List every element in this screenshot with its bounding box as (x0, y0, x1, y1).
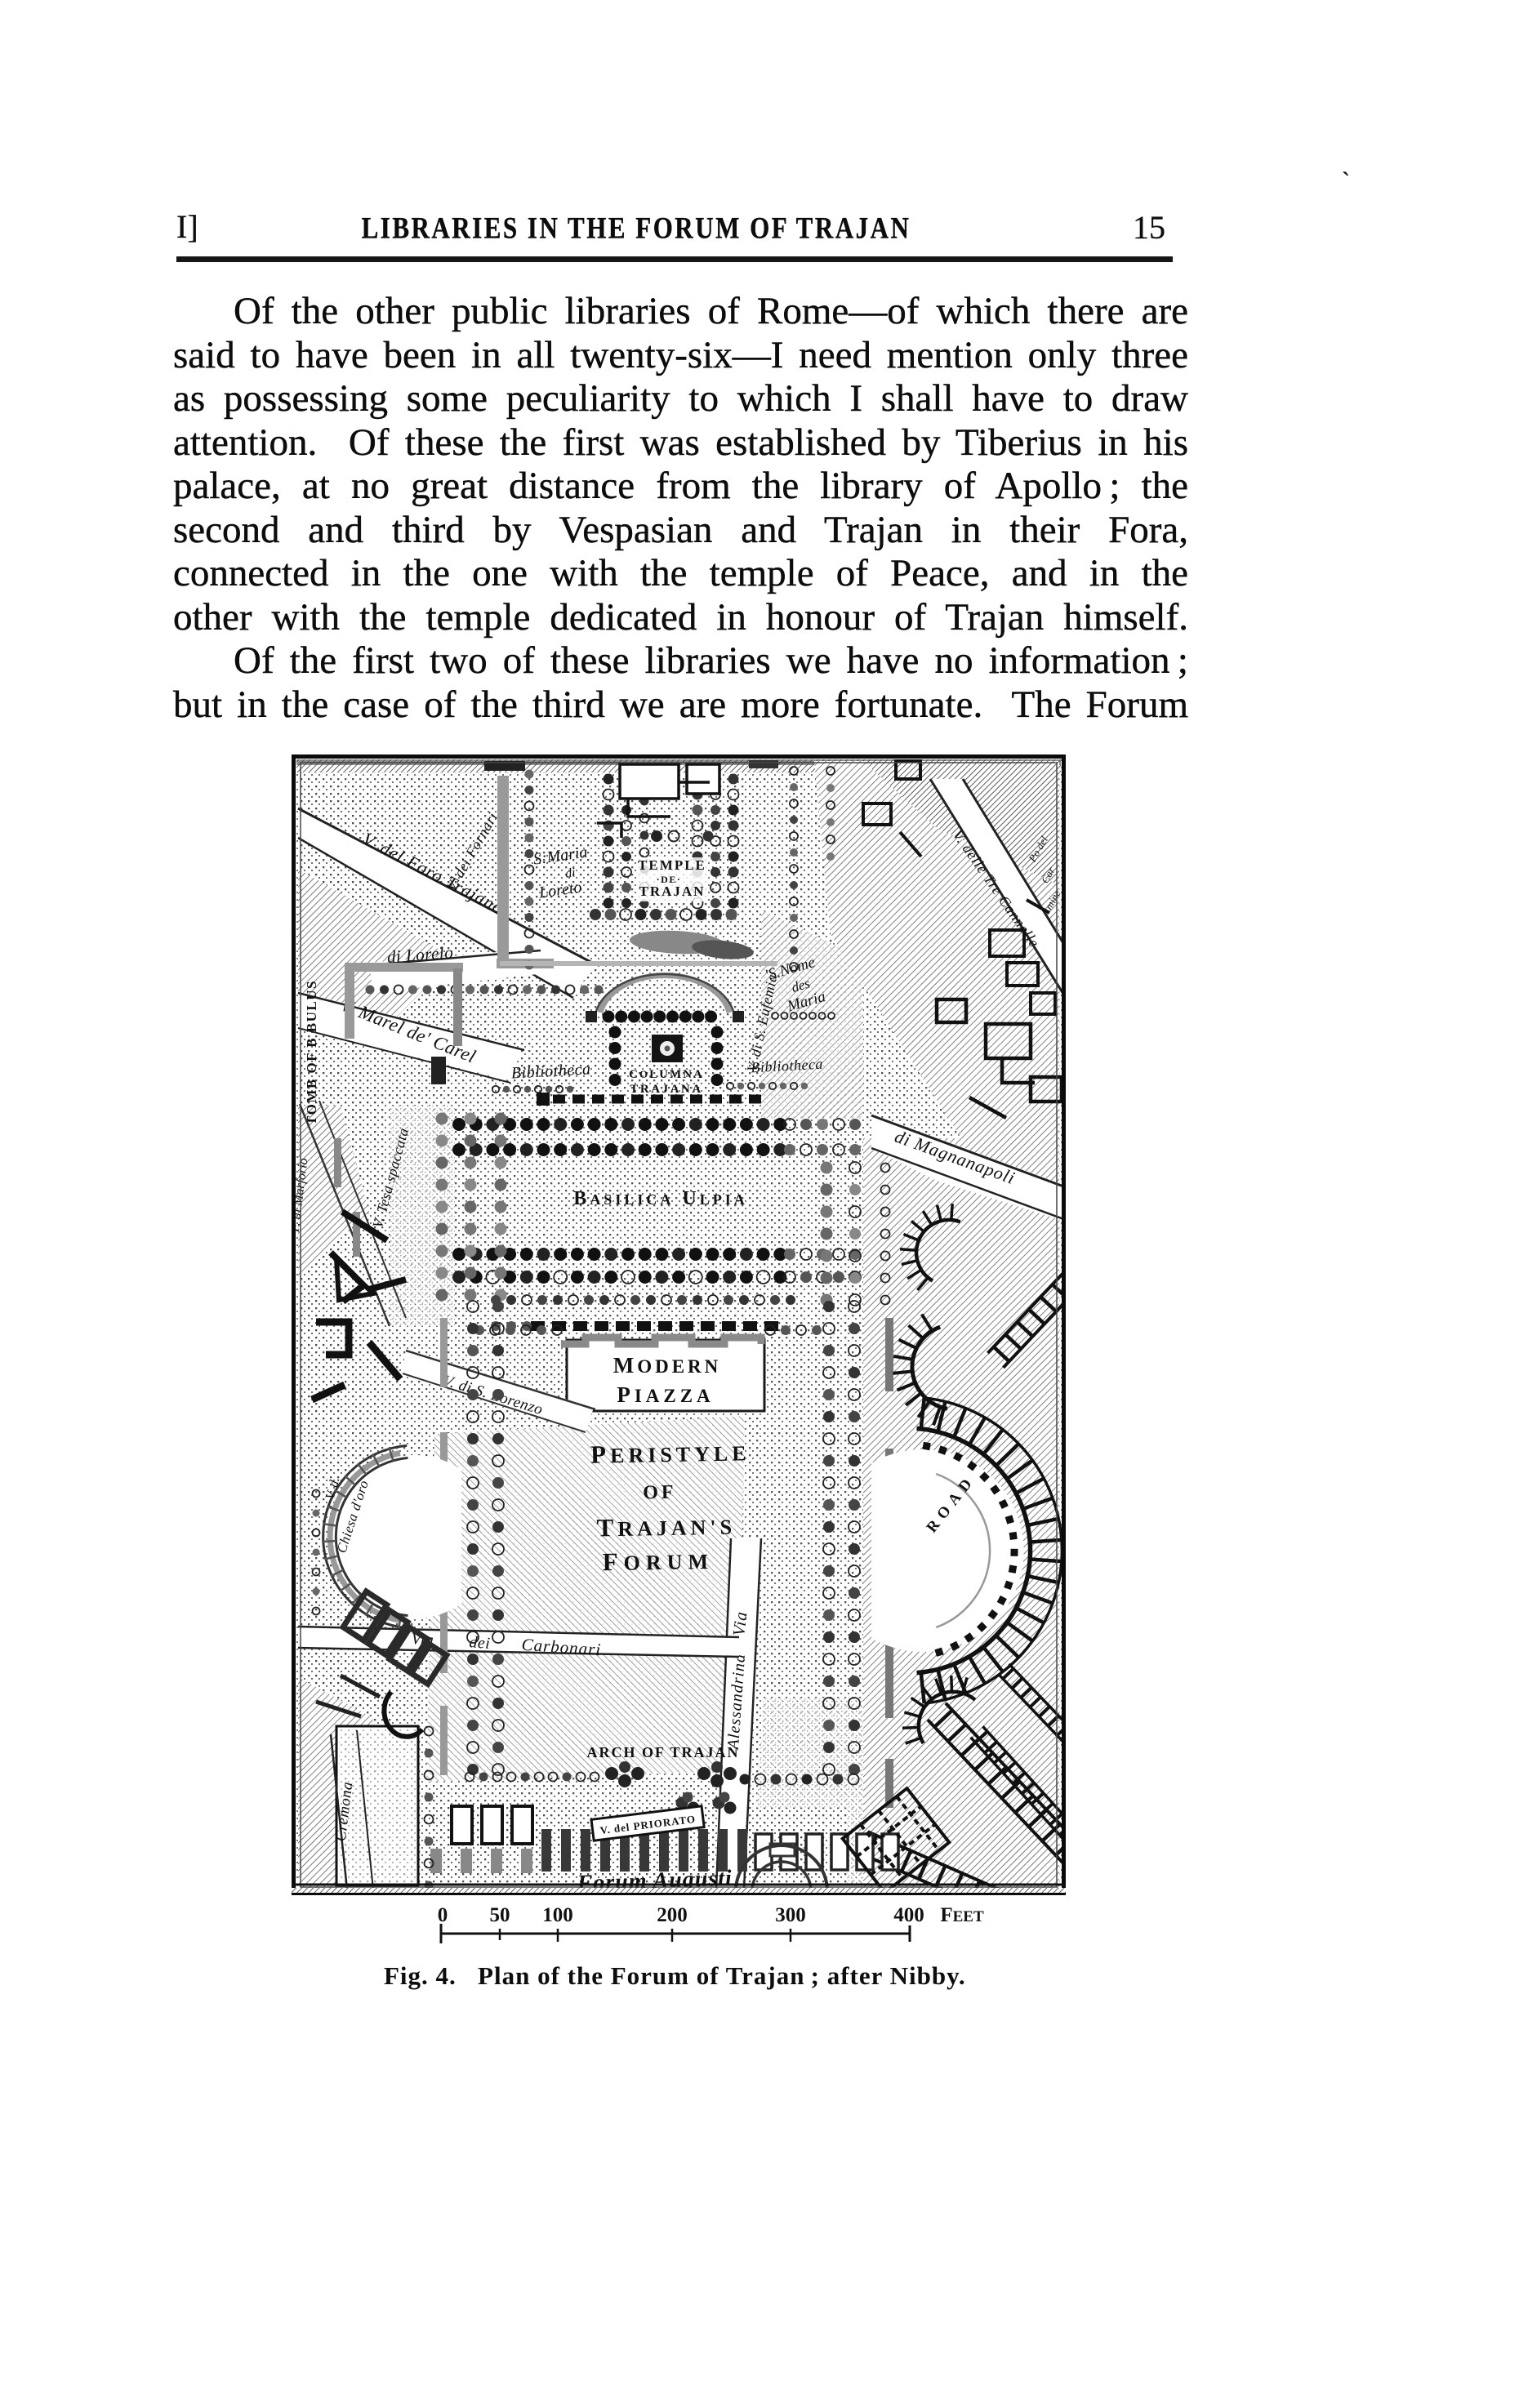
svg-text:TOMB OF B BULUS: TOMB OF B BULUS (304, 980, 319, 1125)
svg-text:MODERN: MODERN (613, 1353, 722, 1378)
svg-text:100: 100 (542, 1904, 573, 1926)
svg-text:PIAZZA: PIAZZA (617, 1382, 714, 1407)
svg-text:OF: OF (643, 1482, 677, 1504)
svg-text:200: 200 (657, 1904, 688, 1926)
svg-text:FEET: FEET (940, 1904, 984, 1926)
svg-text:400: 400 (893, 1904, 924, 1926)
svg-text:TRAJAN: TRAJAN (639, 884, 706, 899)
svg-text:TEMPLE: TEMPLE (638, 857, 706, 873)
svg-text:300: 300 (775, 1904, 806, 1926)
svg-text:TRAJANA: TRAJANA (630, 1083, 702, 1096)
svg-text:Via: Via (729, 1610, 751, 1637)
svg-text:0: 0 (438, 1904, 448, 1926)
svg-text:BASILICA ULPIA: BASILICA ULPIA (573, 1188, 747, 1209)
svg-text:ARCH OF TRAJAN: ARCH OF TRAJAN (586, 1744, 739, 1760)
svg-text:FORUM: FORUM (602, 1546, 714, 1576)
svg-text:50: 50 (490, 1904, 510, 1926)
svg-text:COLUMNA: COLUMNA (629, 1068, 704, 1081)
svg-text:TRAJAN'S: TRAJAN'S (596, 1511, 736, 1542)
